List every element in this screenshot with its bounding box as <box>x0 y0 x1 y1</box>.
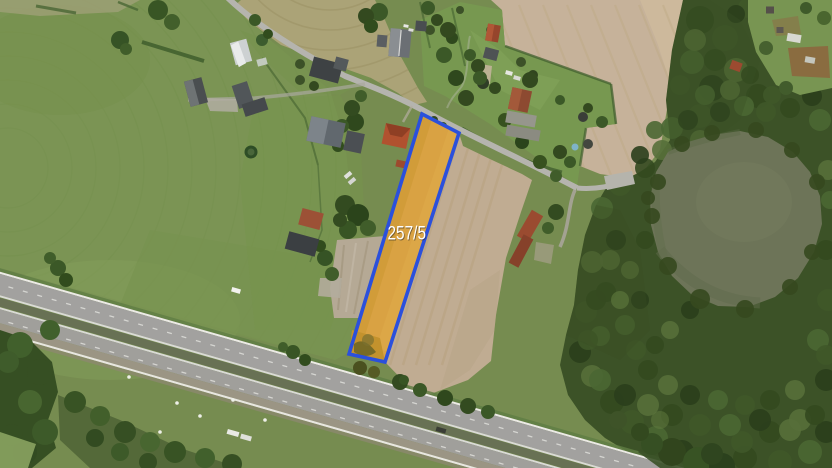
svg-text:257/5: 257/5 <box>388 224 427 245</box>
